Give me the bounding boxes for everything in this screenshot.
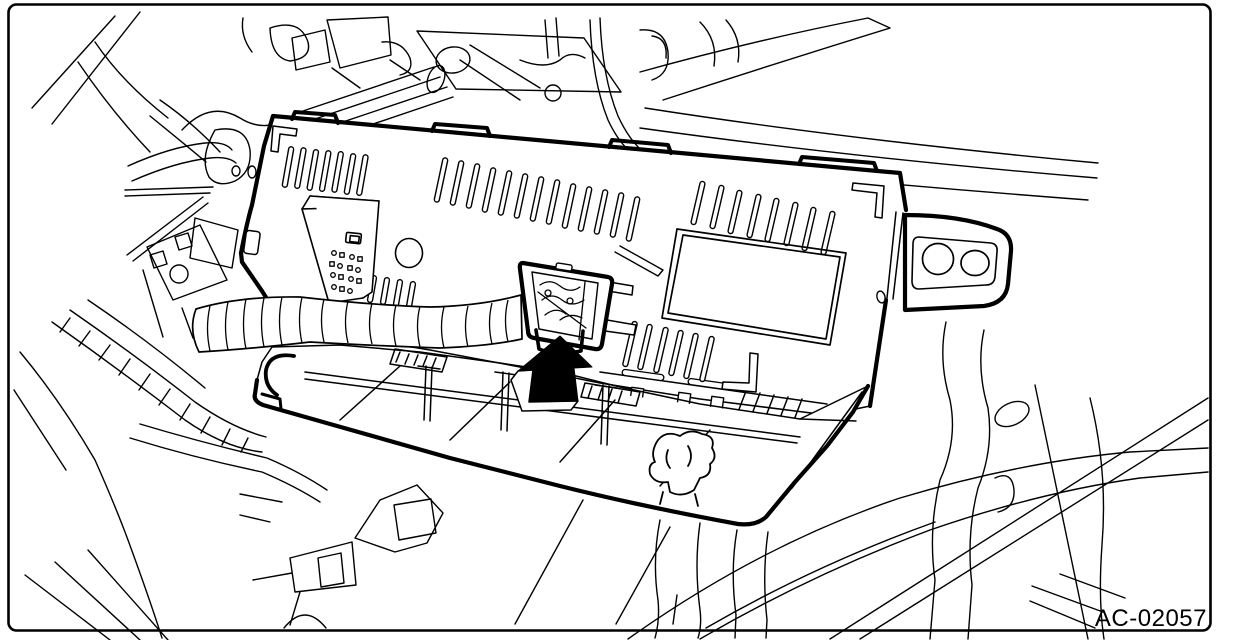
technical-illustration: AC-02057 [0, 0, 1248, 640]
figure-code: AC-02057 [1095, 605, 1207, 632]
control-unit-mounting-bracket [905, 215, 1011, 310]
unit-round-hole [396, 239, 423, 268]
bracket-oval-hole [961, 251, 989, 276]
bracket-round-hole [923, 244, 954, 275]
corrugated-harness-tube [193, 295, 522, 352]
figure-canvas: AC-02057 [0, 0, 1248, 640]
